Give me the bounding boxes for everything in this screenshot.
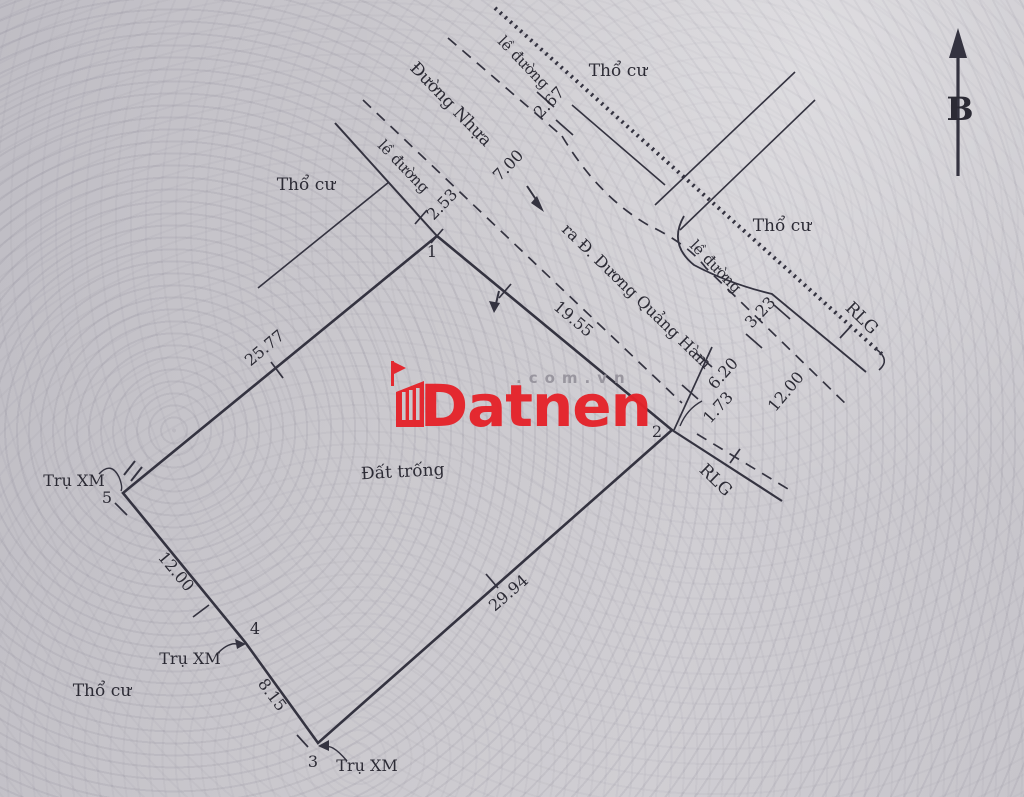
marker-tru-xm-4: Trụ XM: [159, 649, 220, 668]
measurement-edge-2-3: 29.94: [485, 571, 532, 615]
measurement-right-offset: 1.73: [699, 388, 737, 427]
north-arrow-head: [949, 28, 967, 58]
survey-sketch-page: Thổ cư Thổ cư Thổ cư Thổ cư Đất trống Đư…: [0, 0, 1024, 797]
vertex-label-2: 2: [652, 422, 662, 441]
label-tho-cu-left: Thổ cư: [277, 175, 337, 195]
label-le-duong-top: lề đường: [494, 32, 553, 93]
north-arrow: B: [946, 28, 973, 176]
vertex5-callout: [99, 461, 142, 491]
vertex-label-1: 1: [427, 242, 437, 261]
marker-labels: Trụ XM Trụ XM Trụ XM: [43, 471, 397, 775]
north-label: B: [946, 90, 973, 128]
road-direction-arrow: [527, 186, 544, 212]
label-dat-trong: Đất trống: [360, 460, 445, 484]
watermark-logo: Datnen .com.vn: [391, 361, 651, 440]
measurement-sidewalk-top: 2.67: [530, 83, 568, 122]
measurement-road-width: 7.00: [489, 146, 527, 185]
cadastral-drawing: Thổ cư Thổ cư Thổ cư Thổ cư Đất trống Đư…: [0, 0, 1024, 797]
marker-tru-xm-3: Trụ XM: [336, 756, 397, 775]
vertex-label-5: 5: [102, 488, 112, 507]
measurement-right-corridor: 12.00: [764, 368, 808, 415]
measurement-edge-4-5: 12.00: [154, 548, 198, 595]
edge-marker-arrow: [489, 291, 500, 313]
label-tho-cu-right: Thổ cư: [753, 216, 813, 236]
label-rlg-top: RLG: [841, 298, 882, 339]
label-tho-cu-top: Thổ cư: [589, 61, 649, 81]
measurement-sidewalk-right: 3.23: [741, 293, 779, 332]
road-boundary-rlg-hatched: [495, 8, 884, 370]
marker-tru-xm-5: Trụ XM: [43, 471, 104, 490]
label-le-duong-right: lề đường: [686, 236, 745, 297]
label-tho-cu-bottom: Thổ cư: [73, 681, 133, 701]
vertex-label-4: 4: [250, 619, 260, 638]
vertex-label-3: 3: [308, 752, 318, 771]
logo-suffix-text: .com.vn: [516, 369, 632, 387]
label-duong-nhua: Đường Nhựa: [406, 58, 496, 150]
measurement-edge-3-4: 8.15: [254, 675, 291, 715]
measurement-sidewalk-at-1: 2.53: [423, 185, 461, 224]
